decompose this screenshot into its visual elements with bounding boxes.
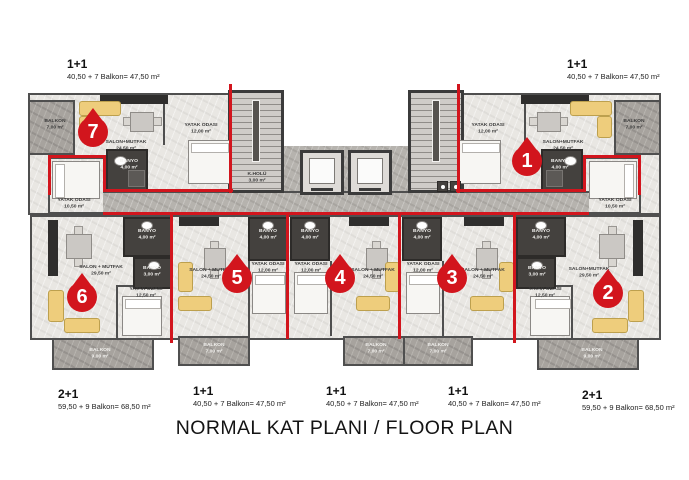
bed-u1 [459, 140, 501, 184]
unit-2-area: 59,50 + 9 Balkon= 68,50 m² [582, 403, 675, 412]
red-divider-u4-u3 [398, 215, 401, 339]
room-label-u7-banyo: BANYO4,00 m² [120, 158, 138, 170]
shaft-dot-1 [441, 185, 445, 189]
badge-unit-5-number: 5 [231, 267, 242, 290]
room-label-u6-yatak: YATAK ODASI12,50 m² [130, 286, 163, 298]
room-label-u4-salon: SALON + MUTFAK24,50 m² [351, 267, 395, 279]
unit-7-area: 40,50 + 7 Balkon= 47,50 m² [67, 72, 160, 81]
unit-4-area: 40,50 + 7 Balkon= 47,50 m² [326, 399, 419, 408]
sofa-u2-h [592, 318, 628, 333]
unit-3-label: 1+1 40,50 + 7 Balkon= 47,50 m² [448, 385, 541, 408]
pillow-u3 [409, 275, 439, 285]
bed-u3 [406, 272, 440, 314]
floor-plan-canvas: 7 1 6 5 4 3 2 BALKON7,00 m² SALON+MUTFAK… [0, 0, 689, 480]
elevator-car-left [309, 158, 335, 184]
room-label-u6-banyo-small: BANYO3,00 m² [143, 265, 161, 277]
wall-u2-bedroom-v [571, 285, 573, 340]
badge-unit-7-number: 7 [87, 121, 98, 144]
shaft-box-1 [437, 181, 448, 192]
room-label-u1-balkon: BALKON7,00 m² [623, 118, 644, 130]
red-boundary-u7-west [48, 155, 51, 195]
shower-icon-u1 [546, 170, 563, 187]
table-u1 [537, 112, 561, 132]
sofa-u5-h [178, 296, 212, 311]
elevator-car-right [357, 158, 383, 184]
unit-1-area: 40,50 + 7 Balkon= 47,50 m² [567, 72, 660, 81]
unit-2-type: 2+1 [582, 389, 675, 402]
bed-u2-small [589, 161, 637, 199]
unit-5-type: 1+1 [193, 385, 286, 398]
red-divider-u6-u5 [170, 215, 173, 343]
red-boundary-u1-east [638, 155, 641, 195]
sofa-u6-v [48, 290, 64, 322]
unit-3-kitchen-counter [464, 217, 504, 226]
wall-u6-bedroom-v [116, 285, 118, 340]
badge-unit-6: 6 [67, 282, 97, 312]
room-label-u6-yatak-small: YATAK ODASI10,50 m² [58, 197, 91, 209]
unit-4-type: 1+1 [326, 385, 419, 398]
unit-1-label: 1+1 40,50 + 7 Balkon= 47,50 m² [567, 58, 660, 81]
unit-2-kitchen-counter [633, 220, 643, 276]
elevator-shaft-left [300, 150, 344, 195]
sofa-u1-v [597, 116, 612, 138]
unit-6-type: 2+1 [58, 388, 151, 401]
chair-u7-right [153, 117, 162, 126]
red-boundary-u1-south-east [583, 155, 641, 158]
sofa-u1-h [570, 101, 612, 116]
page-title: NORMAL KAT PLANI / FLOOR PLAN [176, 417, 513, 440]
unit-2-label: 2+1 59,50 + 9 Balkon= 68,50 m² [582, 389, 675, 412]
stair-rail-left [252, 100, 260, 162]
table-u7 [130, 112, 154, 132]
room-label-u7-salon: SALON+MUTFAK24,50 m² [106, 139, 147, 151]
badge-unit-4: 4 [325, 263, 355, 293]
room-label-u6-balkon: BALKON9,00 m² [89, 347, 110, 359]
sofa-u4-h [356, 296, 390, 311]
room-label-u4-balkon: BALKON7,00 m² [365, 342, 386, 354]
pillow-u6 [125, 299, 161, 309]
red-boundary-u7-jog [103, 155, 106, 192]
badge-unit-7: 7 [78, 117, 108, 147]
elevator-door-left [311, 188, 333, 191]
badge-unit-3: 3 [437, 263, 467, 293]
unit-3-type: 1+1 [448, 385, 541, 398]
unit-4-kitchen-counter [349, 217, 389, 226]
table-u2 [599, 234, 625, 259]
badge-unit-1-number: 1 [521, 150, 532, 173]
room-label-u1-banyo: BANYO4,00 m² [551, 158, 569, 170]
sofa-u2-v [628, 290, 644, 322]
unit-3-area: 40,50 + 7 Balkon= 47,50 m² [448, 399, 541, 408]
room-label-u2-yatak-small: YATAK ODASI10,50 m² [599, 197, 632, 209]
room-label-u3-banyo: BANYO4,00 m² [413, 228, 431, 240]
unit-7-label: 1+1 40,50 + 7 Balkon= 47,50 m² [67, 58, 160, 81]
red-boundary-core-right [457, 84, 460, 193]
unit-6-kitchen-counter [48, 220, 58, 276]
shower-icon-u7 [128, 170, 145, 187]
sofa-u3-h [470, 296, 504, 311]
unit-5-area: 40,50 + 7 Balkon= 47,50 m² [193, 399, 286, 408]
room-label-u3-yatak: YATAK ODASI12,00 m² [407, 261, 440, 273]
badge-unit-1: 1 [512, 146, 542, 176]
room-label-u1-salon: SALON+MUTFAK24,50 m² [543, 139, 584, 151]
room-label-u5-banyo: BANYO4,00 m² [259, 228, 277, 240]
pillow-u6-small [55, 164, 65, 198]
bed-u7 [188, 140, 230, 184]
room-label-u2-banyo-small: BANYO3,00 m² [528, 265, 546, 277]
unit-1-type: 1+1 [567, 58, 660, 71]
red-boundary-core-left [229, 84, 232, 193]
table-u6 [66, 234, 92, 259]
bed-u5 [252, 272, 286, 314]
pillow-u2-small [624, 164, 634, 198]
unit-6-area: 59,50 + 9 Balkon= 68,50 m² [58, 402, 151, 411]
room-label-core-hall: K.HOLÜ3,00 m² [248, 171, 267, 183]
red-boundary-corridor-south [103, 212, 589, 215]
red-boundary-u7-south-west [48, 155, 106, 158]
room-label-u7-yatak: YATAK ODASI12,00 m² [185, 122, 218, 134]
pillow-u1 [462, 143, 500, 153]
red-boundary-u1-south-west [456, 189, 586, 192]
room-label-u2-balkon: BALKON9,00 m² [581, 347, 602, 359]
room-label-u5-yatak: YATAK ODASI12,00 m² [252, 261, 285, 273]
badge-unit-6-number: 6 [76, 286, 87, 309]
badge-unit-3-number: 3 [446, 267, 457, 290]
room-label-u2-banyo-big: BANYO4,00 m² [532, 228, 550, 240]
red-boundary-u7-south-east [103, 189, 233, 192]
pillow-u4 [297, 275, 327, 285]
unit-4-label: 1+1 40,50 + 7 Balkon= 47,50 m² [326, 385, 419, 408]
unit-7-type: 1+1 [67, 58, 160, 71]
unit-6-label: 2+1 59,50 + 9 Balkon= 68,50 m² [58, 388, 151, 411]
room-label-u7-balkon: BALKON7,00 m² [44, 118, 65, 130]
red-divider-u3-u2 [513, 215, 516, 343]
red-divider-u5-u4 [286, 215, 289, 339]
room-label-u3-balkon: BALKON7,00 m² [427, 342, 448, 354]
red-boundary-u1-jog [583, 155, 586, 192]
bed-u4 [294, 272, 328, 314]
elevator-door-right [359, 188, 381, 191]
bed-u2 [530, 296, 570, 336]
badge-unit-2-number: 2 [602, 282, 613, 305]
bed-u6-small [52, 161, 100, 199]
stair-rail-right [432, 100, 440, 162]
pillow-u2 [535, 299, 571, 309]
elevator-shaft-right [348, 150, 392, 195]
unit-5-label: 1+1 40,50 + 7 Balkon= 47,50 m² [193, 385, 286, 408]
room-label-u4-banyo: BANYO4,00 m² [301, 228, 319, 240]
room-label-u4-yatak: YATAK ODASI12,00 m² [295, 261, 328, 273]
pillow-u7 [191, 143, 229, 153]
pillow-u5 [255, 275, 285, 285]
badge-unit-5: 5 [222, 263, 252, 293]
room-label-u1-yatak: YATAK ODASI12,00 m² [472, 122, 505, 134]
sofa-u6-h [64, 318, 100, 333]
room-label-u2-yatak: YATAK ODASI12,50 m² [529, 286, 562, 298]
badge-unit-2: 2 [593, 278, 623, 308]
room-label-u3-salon: SALON + MUTFAK24,50 m² [461, 267, 505, 279]
room-label-u6-banyo-big: BANYO4,00 m² [138, 228, 156, 240]
bed-u6 [122, 296, 162, 336]
room-label-u5-balkon: BALKON7,00 m² [203, 342, 224, 354]
badge-unit-4-number: 4 [334, 267, 345, 290]
unit-5-kitchen-counter [179, 217, 219, 226]
